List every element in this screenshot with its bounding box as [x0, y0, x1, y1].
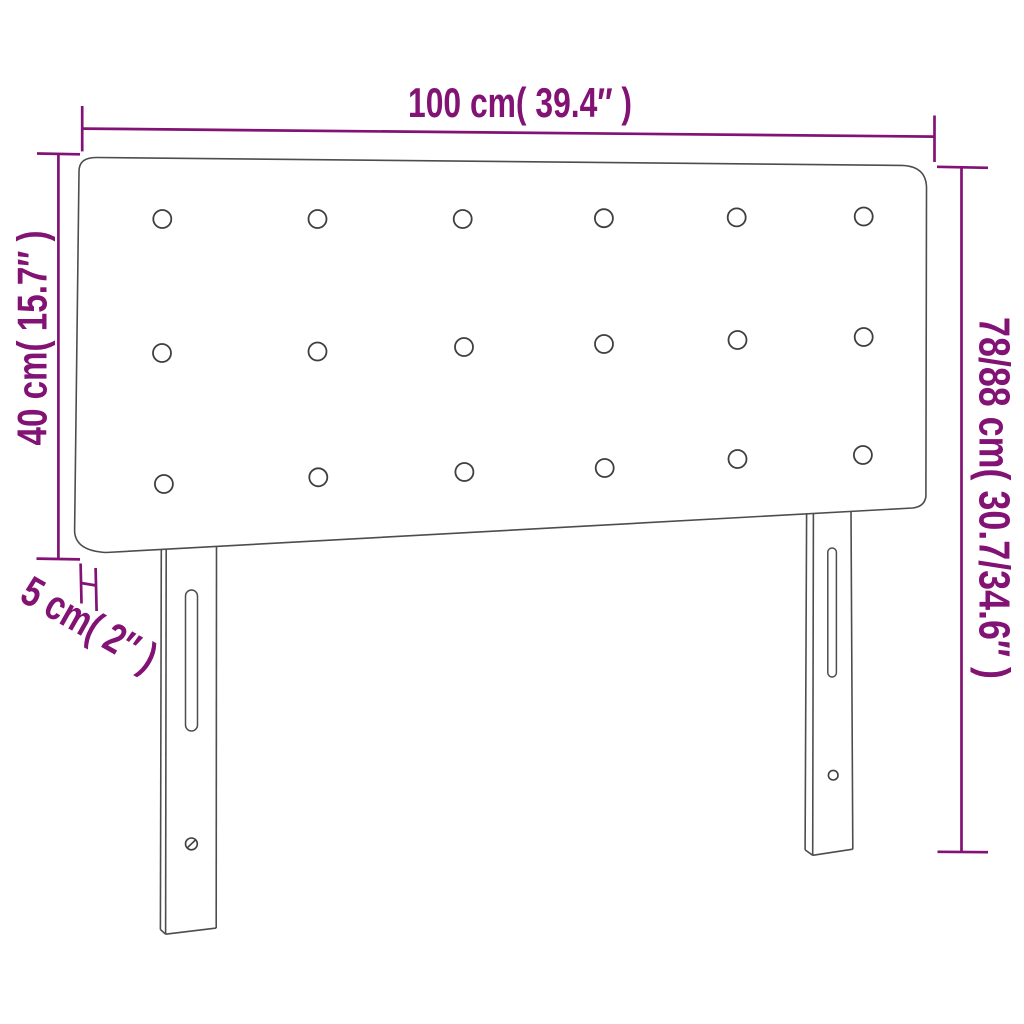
svg-text:78/88 cm( 30.7/34.6″ ): 78/88 cm( 30.7/34.6″ ): [970, 317, 1018, 679]
svg-text:100 cm( 39.4″ ): 100 cm( 39.4″ ): [408, 79, 632, 126]
svg-text:40 cm( 15.7″ ): 40 cm( 15.7″ ): [9, 231, 56, 446]
